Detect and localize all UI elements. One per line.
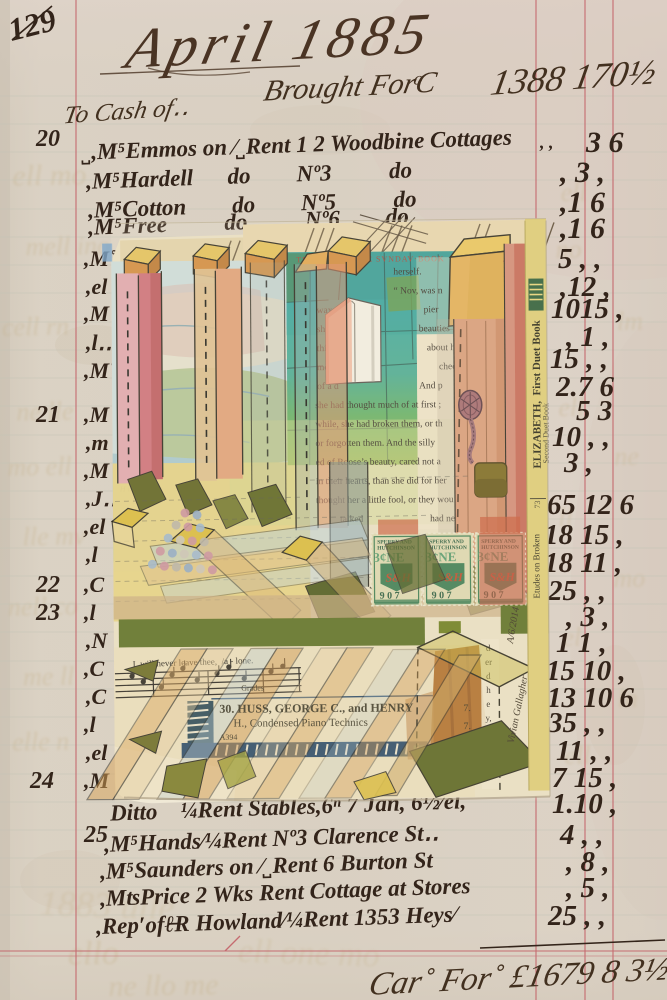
svg-text:20: 20 [35,126,60,152]
svg-text:,N: ,N [85,628,109,653]
svg-text:,m: ,m [85,430,109,455]
svg-text:,M˚: ,M˚ [83,358,117,383]
svg-text:,el: ,el [85,740,108,765]
svg-text:24: 24 [29,768,54,794]
svg-text:mo ell: mo ell [7,452,72,482]
svg-text:,l: ,l [83,600,97,625]
svg-text:,C: ,C [83,656,105,681]
svg-text:, ,: , , [539,132,554,152]
svg-text:, 3 ,: , 3 , [559,156,605,189]
svg-text:ne llo me: ne llo me [108,968,219,1000]
svg-text:1.10 ,: 1.10 , [552,788,617,820]
svg-text:,M: ,M [83,458,111,483]
svg-text:ello: ello [68,935,120,973]
svg-text:21: 21 [35,402,60,428]
svg-text:,el: ,el [85,274,108,299]
svg-text:3 6: 3 6 [585,126,624,159]
svg-text:ne: ne [614,442,639,471]
svg-text:,C: ,C [83,572,105,597]
svg-text:,l: ,l [85,542,99,567]
svg-text:,M: ,M [83,402,111,427]
svg-text:3 ,: 3 , [563,447,593,479]
svg-text:,el: ,el [83,514,106,539]
svg-text:23: 23 [35,600,60,626]
svg-text:,l‥: ,l‥ [85,330,112,355]
svg-text:elle n: elle n [12,727,70,757]
svg-text:25 , ,: 25 , , [547,900,606,932]
svg-text:cell rn: cell rn [2,312,70,342]
svg-text:ell one mo: ell one mo [238,933,381,975]
svg-text:65 12 6: 65 12 6 [547,489,635,521]
svg-text:22: 22 [35,572,60,598]
svg-text:,C: ,C [85,684,107,709]
svg-text:,l: ,l [83,712,97,737]
svg-text:,J‥: ,J‥ [85,486,117,511]
svg-text:,1 6: ,1 6 [559,212,605,245]
svg-text:me ll: me ll [23,662,75,692]
